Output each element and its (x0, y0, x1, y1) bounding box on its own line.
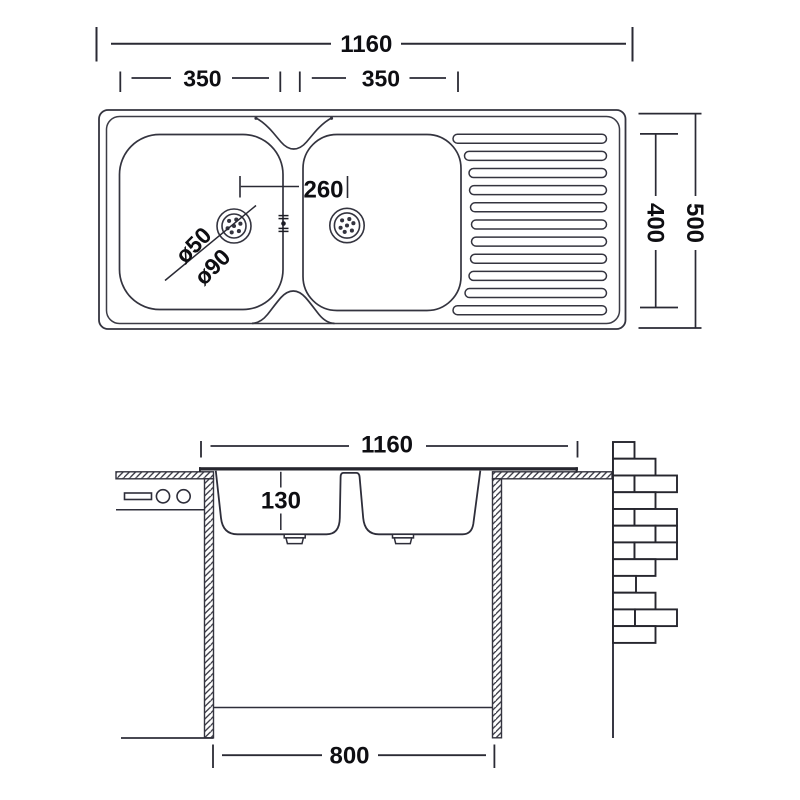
svg-text:260: 260 (303, 176, 343, 203)
svg-text:500: 500 (681, 203, 708, 243)
svg-text:400: 400 (642, 203, 669, 243)
svg-text:350: 350 (362, 65, 400, 91)
svg-text:1160: 1160 (361, 432, 413, 459)
svg-text:130: 130 (261, 488, 301, 515)
svg-text:1160: 1160 (340, 31, 392, 58)
svg-text:350: 350 (183, 65, 221, 91)
svg-text:800: 800 (329, 743, 369, 770)
